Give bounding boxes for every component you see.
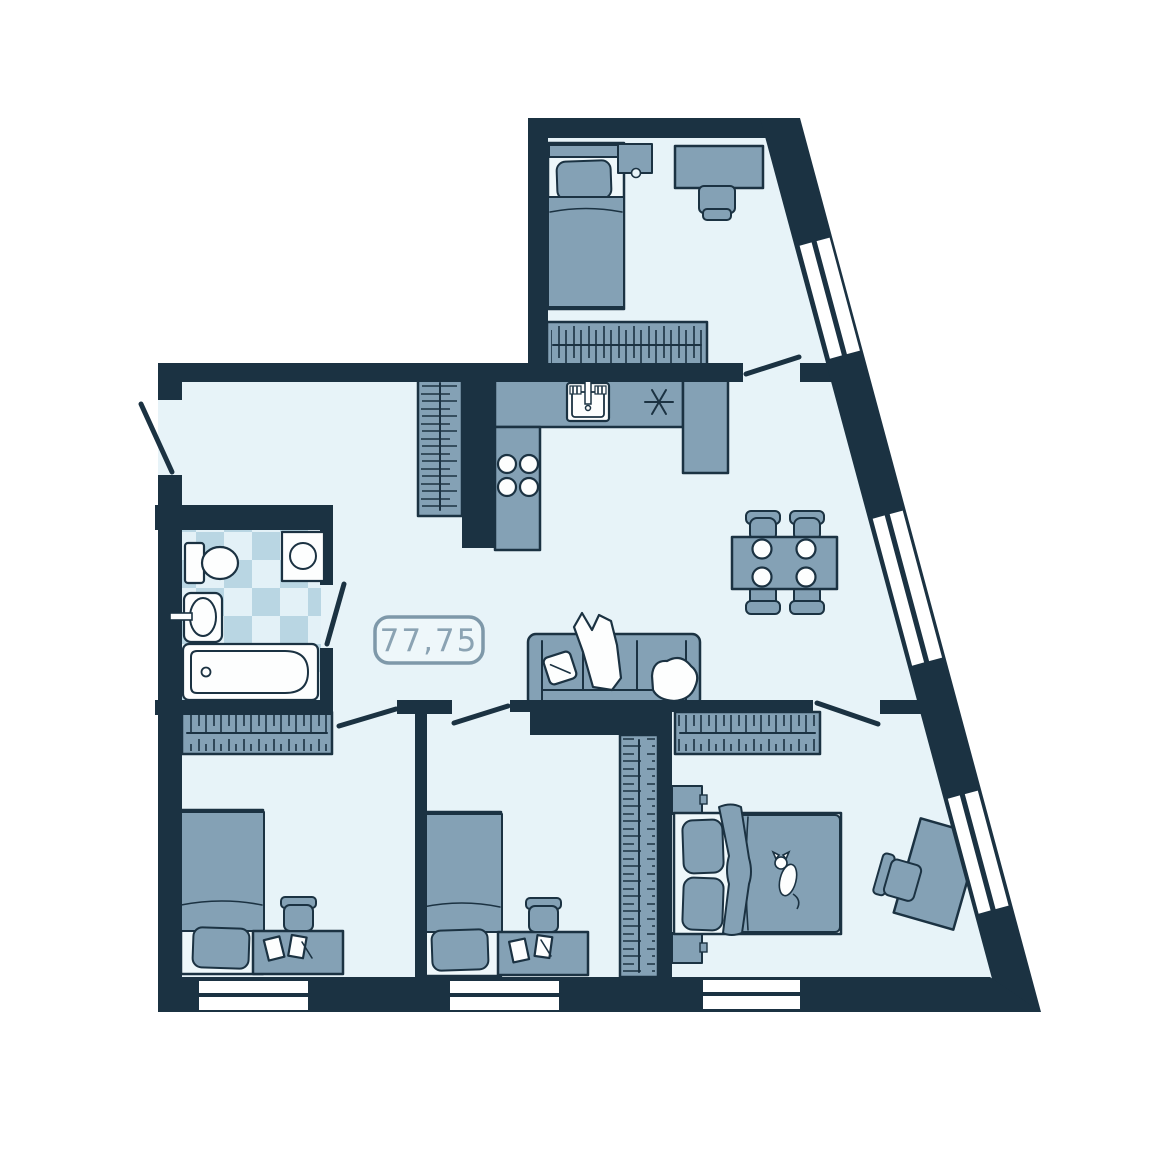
blanket — [548, 197, 624, 307]
interior-wall — [510, 700, 813, 712]
area-label: 77,75 — [375, 617, 483, 663]
bathroom-wall — [320, 648, 333, 715]
desk-chair — [281, 897, 316, 931]
exterior-wall — [528, 118, 800, 138]
desk-chair — [526, 898, 561, 932]
nightstand — [672, 933, 702, 963]
interior-wall — [880, 700, 930, 714]
pillow — [192, 927, 249, 969]
window — [199, 981, 308, 993]
kitchen-counter-right — [683, 378, 728, 473]
kitchen-sink — [567, 378, 609, 421]
wardrobe — [620, 735, 658, 977]
window — [450, 981, 559, 993]
floor-plan: 77,75 — [0, 0, 1166, 1166]
window — [703, 996, 800, 1009]
kitchen-wall — [462, 363, 495, 548]
bathtub — [183, 644, 318, 700]
dining-table — [732, 537, 837, 589]
interior-wall — [397, 700, 452, 714]
area-value: 77,75 — [380, 623, 479, 659]
nightstand — [672, 786, 702, 814]
pillow — [682, 877, 724, 930]
wardrobe — [547, 322, 707, 368]
window — [199, 997, 308, 1010]
bathroom-wall — [155, 505, 333, 530]
desk-chair — [699, 186, 735, 220]
blanket — [179, 812, 264, 931]
wardrobe — [675, 712, 820, 754]
pillow — [682, 819, 724, 873]
washing-machine — [282, 532, 324, 581]
headboard — [549, 145, 623, 157]
blanket — [421, 814, 502, 932]
exterior-wall — [528, 118, 548, 382]
bathroom-wall — [155, 700, 333, 715]
interior-wall — [658, 712, 672, 977]
pillow — [556, 160, 611, 200]
window — [703, 980, 800, 992]
toilet — [185, 543, 238, 583]
interior-wall — [158, 363, 743, 382]
interior-wall — [415, 712, 427, 977]
pillow — [431, 929, 488, 971]
floor-plan-page: 77,75 — [0, 0, 1166, 1166]
sofa-cloth — [652, 658, 697, 701]
wardrobe — [182, 712, 332, 754]
window — [450, 997, 559, 1010]
desk — [675, 146, 763, 188]
exterior-wall — [158, 475, 182, 1012]
hall-wardrobe — [418, 377, 462, 516]
nightstand-handle — [632, 169, 641, 178]
interior-wall — [530, 712, 672, 735]
